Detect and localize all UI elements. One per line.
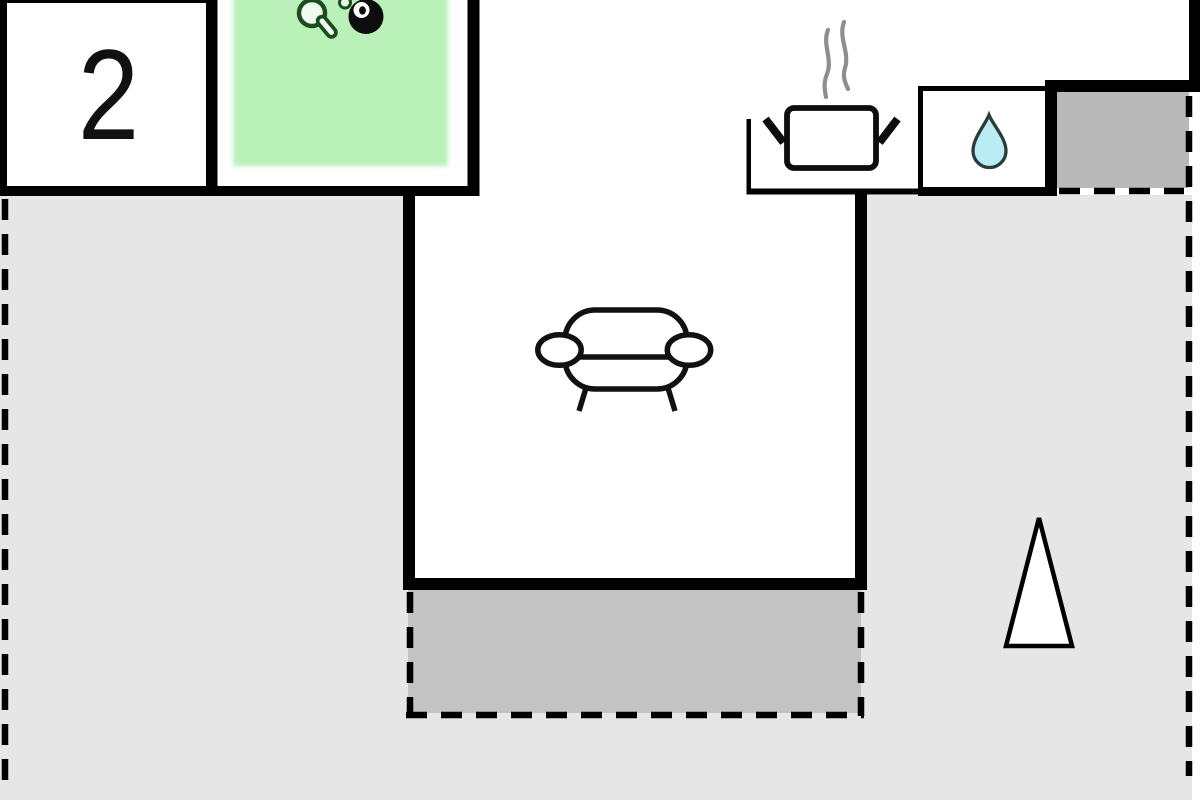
svg-text:2: 2 <box>78 24 139 167</box>
